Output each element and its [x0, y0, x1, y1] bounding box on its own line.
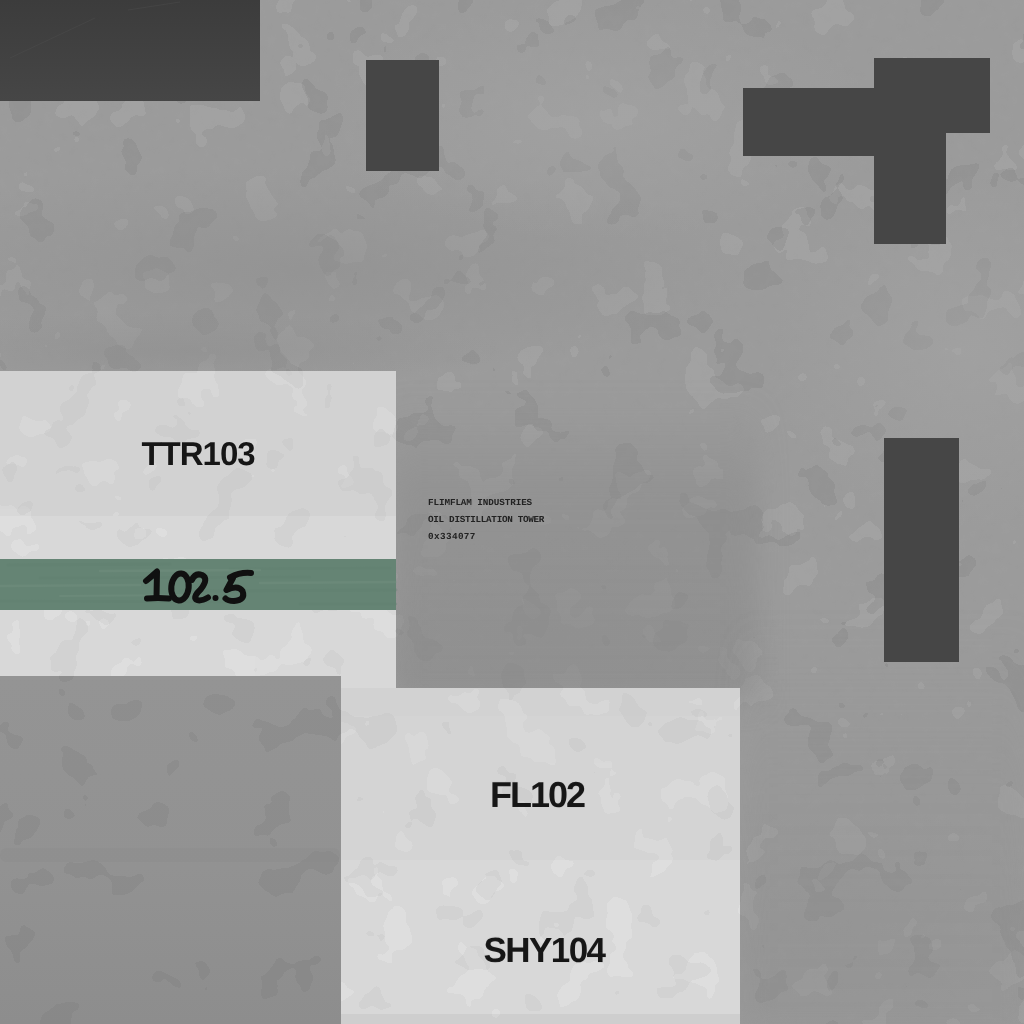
svg-text:TTR103: TTR103 — [141, 435, 255, 472]
svg-text:FLIMFLAM INDUSTRIES: FLIMFLAM INDUSTRIES — [428, 497, 533, 508]
svg-text:OIL DISTILLATION TOWER: OIL DISTILLATION TOWER — [428, 514, 545, 525]
svg-text:SHY104: SHY104 — [484, 931, 607, 970]
svg-text:FL102: FL102 — [490, 774, 585, 815]
svg-text:0x334077: 0x334077 — [428, 531, 476, 542]
